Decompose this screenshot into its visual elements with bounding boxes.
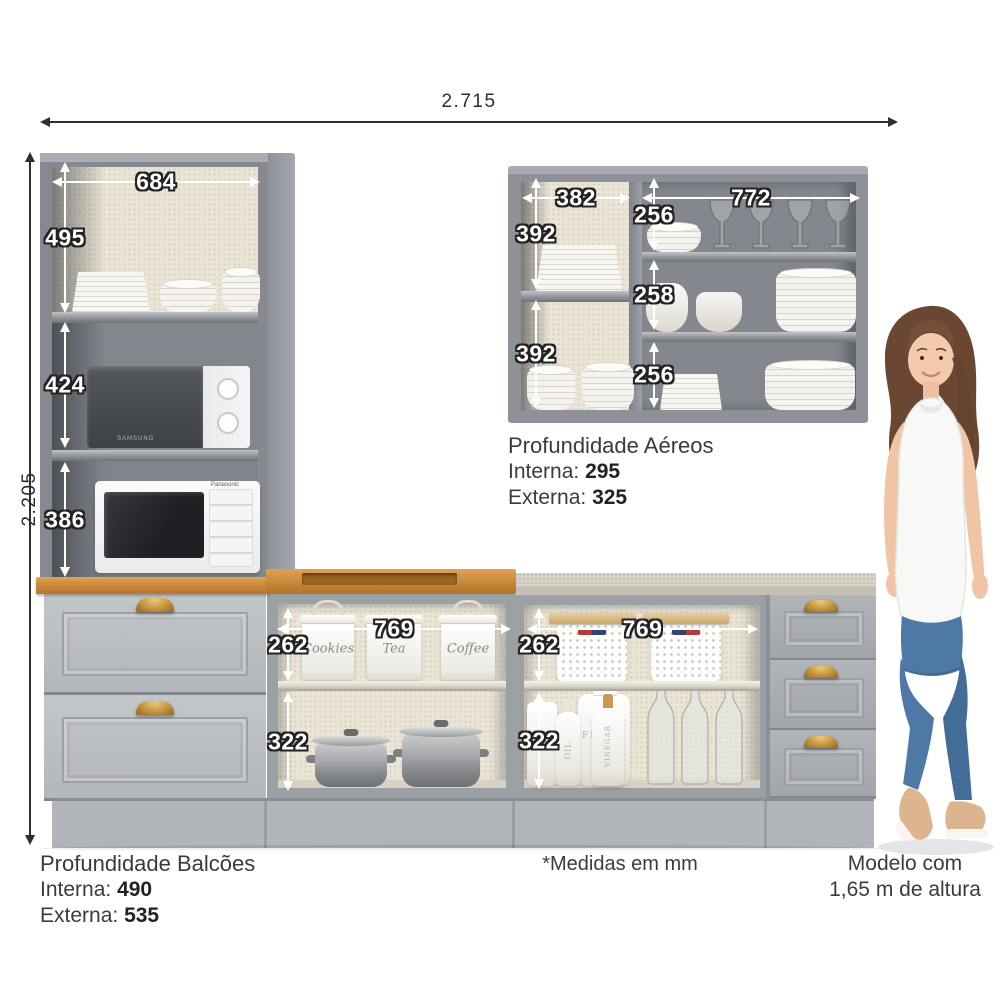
canister-label: Tea xyxy=(367,641,421,656)
model-illustration xyxy=(848,298,1000,858)
dim-label: 495 xyxy=(45,224,85,251)
drawer-panel xyxy=(62,717,248,783)
vinegar-bottle: Vinegar xyxy=(592,708,624,786)
base-depth-title: Profundidade Balcões xyxy=(40,851,255,877)
canister-lid xyxy=(439,615,497,624)
wall-cabinet-top-edge xyxy=(508,166,868,174)
bowls-stack xyxy=(222,271,260,312)
tall-cabinet-wood-counter xyxy=(36,577,270,594)
model-shoe-flat xyxy=(945,801,985,830)
dim-label: 424 xyxy=(45,372,85,399)
model-height-note: Modelo com 1,65 m de altura xyxy=(810,851,1000,903)
wall-depth-interna: Interna: 295 xyxy=(508,459,714,485)
base-depth-info: Profundidade Balcões Interna: 490 Extern… xyxy=(40,851,255,929)
pot-knob xyxy=(434,720,449,727)
microwave-window xyxy=(104,492,204,558)
wall-depth-title: Profundidade Aéreos xyxy=(508,433,714,459)
microwave-control-panel xyxy=(203,366,250,448)
microwave-lower: Panasonic xyxy=(95,481,260,573)
glass-bottles xyxy=(645,686,749,788)
storage-basket xyxy=(556,624,628,683)
dim-label: 322 xyxy=(519,727,559,754)
dim-label: 769 xyxy=(623,616,663,643)
plinth xyxy=(52,798,874,848)
tall-cabinet-side-panel xyxy=(268,153,295,593)
canister-cookies: Cookies xyxy=(302,622,354,680)
canister-label: Coffee xyxy=(441,641,495,656)
model-face xyxy=(908,333,954,387)
bowls-stack xyxy=(776,272,856,332)
model-leg-back xyxy=(943,654,972,800)
cooking-pot xyxy=(402,734,480,787)
kitchen-dimensions-diagram: 2.715 2.205 SAMSUNG xyxy=(0,0,1000,1000)
dim-label: 256 xyxy=(634,362,674,389)
model-neck xyxy=(923,382,939,398)
microwave-upper: SAMSUNG xyxy=(87,366,250,448)
drawer-handle xyxy=(804,736,838,748)
canister-label: Cookies xyxy=(302,641,354,656)
microwave-brand: Panasonic xyxy=(211,482,239,488)
tall-cabinet-top-edge xyxy=(40,153,268,162)
bowls-stack xyxy=(765,364,855,410)
oil-bottle: Oil xyxy=(556,712,580,786)
dim-label: 262 xyxy=(268,631,308,658)
drawer-handle xyxy=(804,666,838,678)
microwave-dial xyxy=(217,412,239,434)
base-depth-externa: Externa: 535 xyxy=(40,903,255,929)
jar-label: Oil xyxy=(564,733,573,769)
jar-label: Vinegar xyxy=(604,716,612,776)
pot-handle xyxy=(393,749,402,757)
microwave-dial xyxy=(217,378,239,400)
dim-label: 392 xyxy=(516,341,556,368)
model-top xyxy=(895,398,966,626)
canister-lid xyxy=(300,615,356,624)
cooking-pot xyxy=(315,743,387,787)
canister-coffee: Coffee xyxy=(441,622,495,680)
tall-cabinet-shelf-2 xyxy=(52,450,258,461)
dim-label: 262 xyxy=(519,631,559,658)
pot-handle xyxy=(306,755,315,763)
tall-cabinet-shelf-1 xyxy=(52,312,258,323)
dim-label: 684 xyxy=(136,169,176,196)
bowls-stack xyxy=(582,366,634,410)
pot-knob xyxy=(344,729,359,736)
dimension-line xyxy=(45,121,893,123)
cup xyxy=(696,292,742,332)
overall-width-label: 2.715 xyxy=(441,91,496,113)
wall-depth-externa: Externa: 325 xyxy=(508,485,714,511)
wall-cabinet-right-shelf-2 xyxy=(642,332,856,342)
microwave-brand: SAMSUNG xyxy=(117,436,154,442)
base-depth-interna: Interna: 490 xyxy=(40,877,255,903)
drawer-handle xyxy=(136,598,174,612)
drawer-handle xyxy=(136,701,174,715)
dim-label: 322 xyxy=(268,728,308,755)
center-base-shelf xyxy=(278,681,506,691)
overall-height-label: 2.205 xyxy=(19,471,41,526)
drawer-panel xyxy=(62,612,248,676)
plates-stack xyxy=(72,272,150,312)
wall-cabinet-right-shelf-1 xyxy=(642,252,856,262)
model-leg-front xyxy=(900,658,934,790)
sink-wood-counter xyxy=(266,569,516,594)
dim-label: 772 xyxy=(731,185,771,212)
right-base-shelf xyxy=(524,681,760,691)
plates-stack xyxy=(536,245,622,291)
dim-label: 256 xyxy=(634,201,674,228)
dim-label: 386 xyxy=(45,506,85,533)
wine-glasses xyxy=(706,199,854,253)
measurements-footnote: *Medidas em mm xyxy=(480,851,760,877)
dim-label: 382 xyxy=(556,185,596,212)
microwave-control-panel xyxy=(209,489,253,567)
dim-label: 392 xyxy=(516,220,556,247)
model-shadow xyxy=(878,839,994,855)
wall-depth-info: Profundidade Aéreos Interna: 295 Externa… xyxy=(508,433,714,511)
pot-lid xyxy=(312,735,390,746)
stone-counter xyxy=(514,573,876,595)
bowls-stack xyxy=(160,283,216,312)
dim-label: 258 xyxy=(634,282,674,309)
model-jeans-hips xyxy=(901,616,963,676)
dim-label: 769 xyxy=(374,616,414,643)
pot-lid xyxy=(399,726,483,737)
sink-recess xyxy=(302,573,457,585)
drawer-handle xyxy=(804,600,838,612)
pot-handle xyxy=(480,749,489,757)
